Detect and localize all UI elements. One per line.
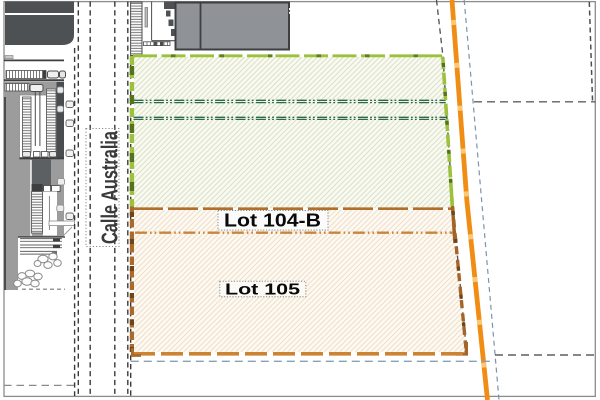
- svg-text:Lot 104-B: Lot 104-B: [224, 210, 321, 231]
- svg-text:Lot 105: Lot 105: [225, 282, 301, 299]
- svg-text:Calle Australia: Calle Australia: [96, 131, 122, 244]
